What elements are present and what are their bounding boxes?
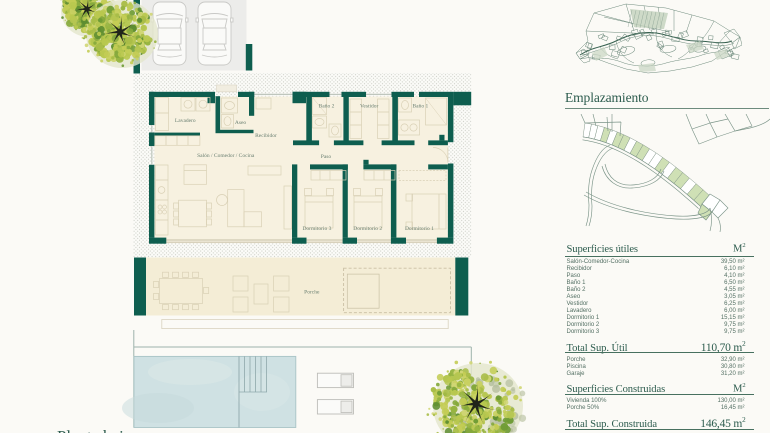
svg-text:Vestidor: Vestidor — [360, 104, 379, 110]
svg-text:Baño 2: Baño 2 — [319, 103, 335, 109]
svg-text:Paso: Paso — [321, 154, 332, 160]
svg-text:Dormitorio 1: Dormitorio 1 — [405, 226, 434, 232]
svg-text:Aseo: Aseo — [235, 120, 247, 126]
svg-text:Dormitorio 2: Dormitorio 2 — [353, 226, 382, 232]
svg-text:Lavadero: Lavadero — [175, 118, 196, 124]
svg-text:Recibidor: Recibidor — [255, 133, 277, 139]
svg-text:Salón / Comedor / Cocina: Salón / Comedor / Cocina — [197, 153, 255, 159]
svg-text:Dormitorio 3: Dormitorio 3 — [302, 226, 331, 232]
svg-text:Baño 1: Baño 1 — [413, 104, 429, 110]
svg-text:Porche: Porche — [304, 290, 320, 296]
